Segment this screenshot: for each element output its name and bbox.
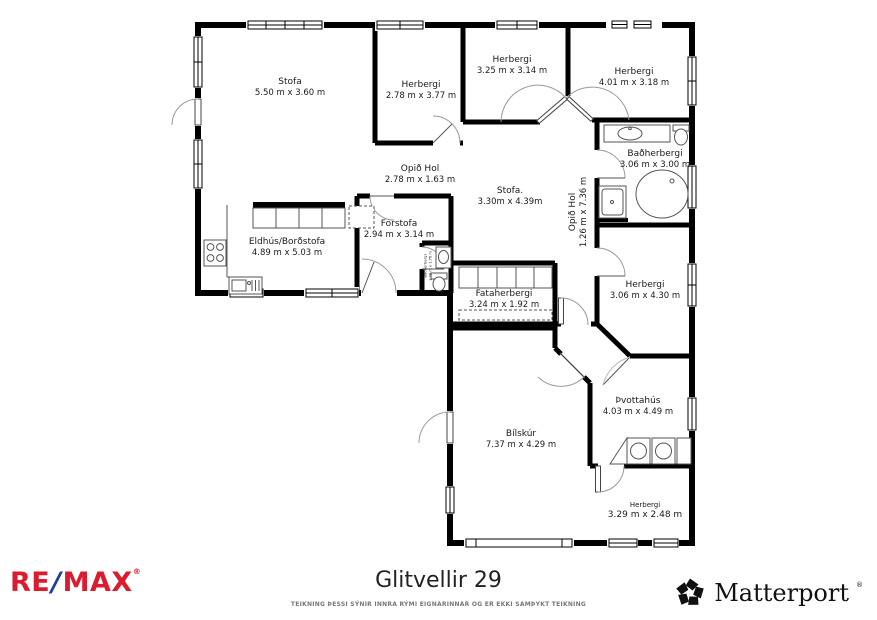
appliance-dashed [349, 206, 374, 228]
wardrobe [459, 267, 552, 288]
garage-door [466, 539, 572, 547]
main-bathroom-fixtures [599, 125, 689, 218]
wardrobe-fixtures [459, 267, 552, 320]
laundry-cabinet [677, 438, 691, 464]
stove [204, 240, 226, 266]
interior-walls [357, 25, 692, 466]
kitchen-fixtures [204, 202, 374, 294]
matterport-wordmark: Matterport [714, 579, 849, 607]
toilet-bowl [433, 277, 445, 291]
floor-plan-drawing [0, 0, 877, 620]
laundry-fixtures [610, 438, 691, 464]
matterport-logo: Matterport ® [673, 576, 863, 610]
island-counter-edge [253, 202, 345, 208]
matterport-pinwheel-icon [673, 576, 707, 610]
floorplan-page: Stofa 5.50 m x 3.60 m Herbergi 2.78 m x … [0, 0, 877, 620]
registered-mark: ® [856, 581, 863, 589]
laundry-counter-corner [610, 438, 627, 464]
toilet-bowl [675, 129, 688, 145]
bathtub [636, 170, 688, 218]
